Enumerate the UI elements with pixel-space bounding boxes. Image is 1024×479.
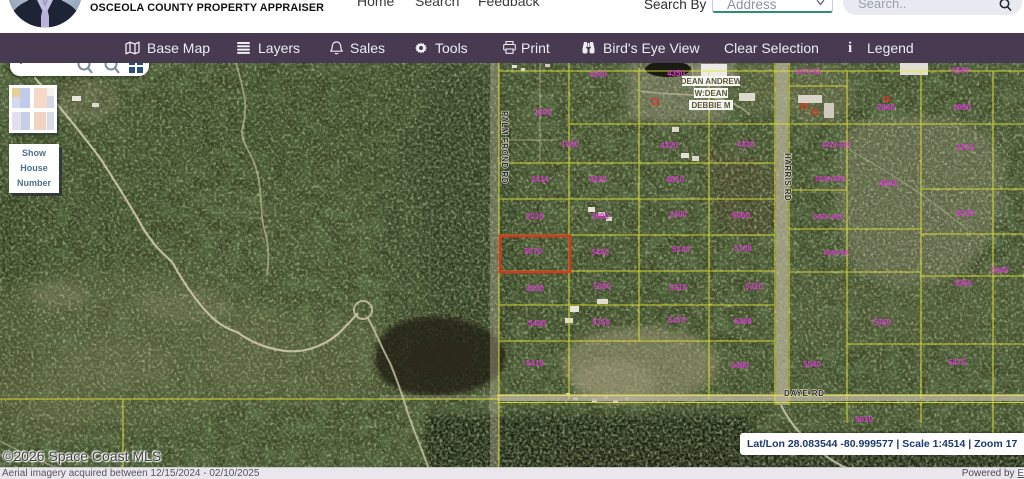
svg-text:4329-683: 4329-683 — [821, 142, 851, 149]
svg-text:5100: 5100 — [734, 244, 752, 253]
svg-text:4715: 4715 — [956, 143, 974, 152]
svg-text:5480: 5480 — [734, 317, 752, 326]
svg-text:5839-683: 5839-683 — [813, 214, 843, 221]
svg-text:2640: 2640 — [877, 103, 895, 112]
svg-text:4340: 4340 — [951, 66, 969, 75]
svg-text:5040: 5040 — [803, 360, 821, 369]
svg-text:5490: 5490 — [528, 319, 546, 328]
svg-text:5475: 5475 — [948, 358, 966, 367]
svg-text:5040: 5040 — [991, 266, 1009, 275]
svg-text:4803: 4803 — [879, 179, 897, 188]
svg-text:PALM FROND RD: PALM FROND RD — [500, 111, 509, 184]
svg-text:5060: 5060 — [732, 211, 750, 220]
svg-text:5360: 5360 — [954, 279, 972, 288]
svg-text:DEAN ANDREW: DEAN ANDREW — [681, 77, 742, 86]
svg-text:5410: 5410 — [526, 359, 544, 368]
svg-text:4320: 4320 — [660, 141, 678, 150]
svg-text:5610: 5610 — [855, 415, 873, 424]
svg-text:DEBBIE M: DEBBIE M — [691, 101, 730, 110]
svg-text:4290: 4290 — [526, 284, 544, 293]
svg-text:4240: 4240 — [589, 70, 607, 79]
svg-text:5020: 5020 — [956, 209, 974, 218]
svg-text:1960: 1960 — [561, 140, 579, 149]
svg-text:2900: 2900 — [953, 103, 971, 112]
svg-text:5460: 5460 — [731, 361, 749, 370]
svg-text:3000: 3000 — [591, 212, 609, 221]
svg-text:5060: 5060 — [873, 318, 891, 327]
svg-text:5140: 5140 — [672, 245, 690, 254]
svg-text:HARRIS RD: HARRIS RD — [783, 153, 792, 201]
svg-text:5350: 5350 — [592, 318, 610, 327]
svg-text:5300: 5300 — [593, 282, 611, 291]
svg-text:5310: 5310 — [669, 283, 687, 292]
svg-text:DAYE RD: DAYE RD — [784, 389, 825, 398]
svg-text:2400: 2400 — [669, 210, 687, 219]
svg-text:5440: 5440 — [591, 248, 609, 257]
svg-text:5470: 5470 — [668, 316, 686, 325]
svg-text:5320: 5320 — [745, 282, 763, 291]
svg-text:4220: 4220 — [589, 175, 607, 184]
svg-text:5070: 5070 — [524, 247, 542, 256]
svg-text:4330: 4330 — [737, 140, 755, 149]
svg-text:2010: 2010 — [526, 212, 544, 221]
svg-text:5039-683: 5039-683 — [815, 176, 845, 183]
svg-text:W:DEAN: W:DEAN — [695, 89, 728, 98]
svg-text:5639-68: 5639-68 — [823, 250, 849, 257]
svg-text:2974-62: 2974-62 — [795, 69, 821, 76]
svg-text:4810: 4810 — [666, 175, 684, 184]
svg-text:1400: 1400 — [534, 108, 552, 117]
svg-text:2414: 2414 — [531, 175, 549, 184]
